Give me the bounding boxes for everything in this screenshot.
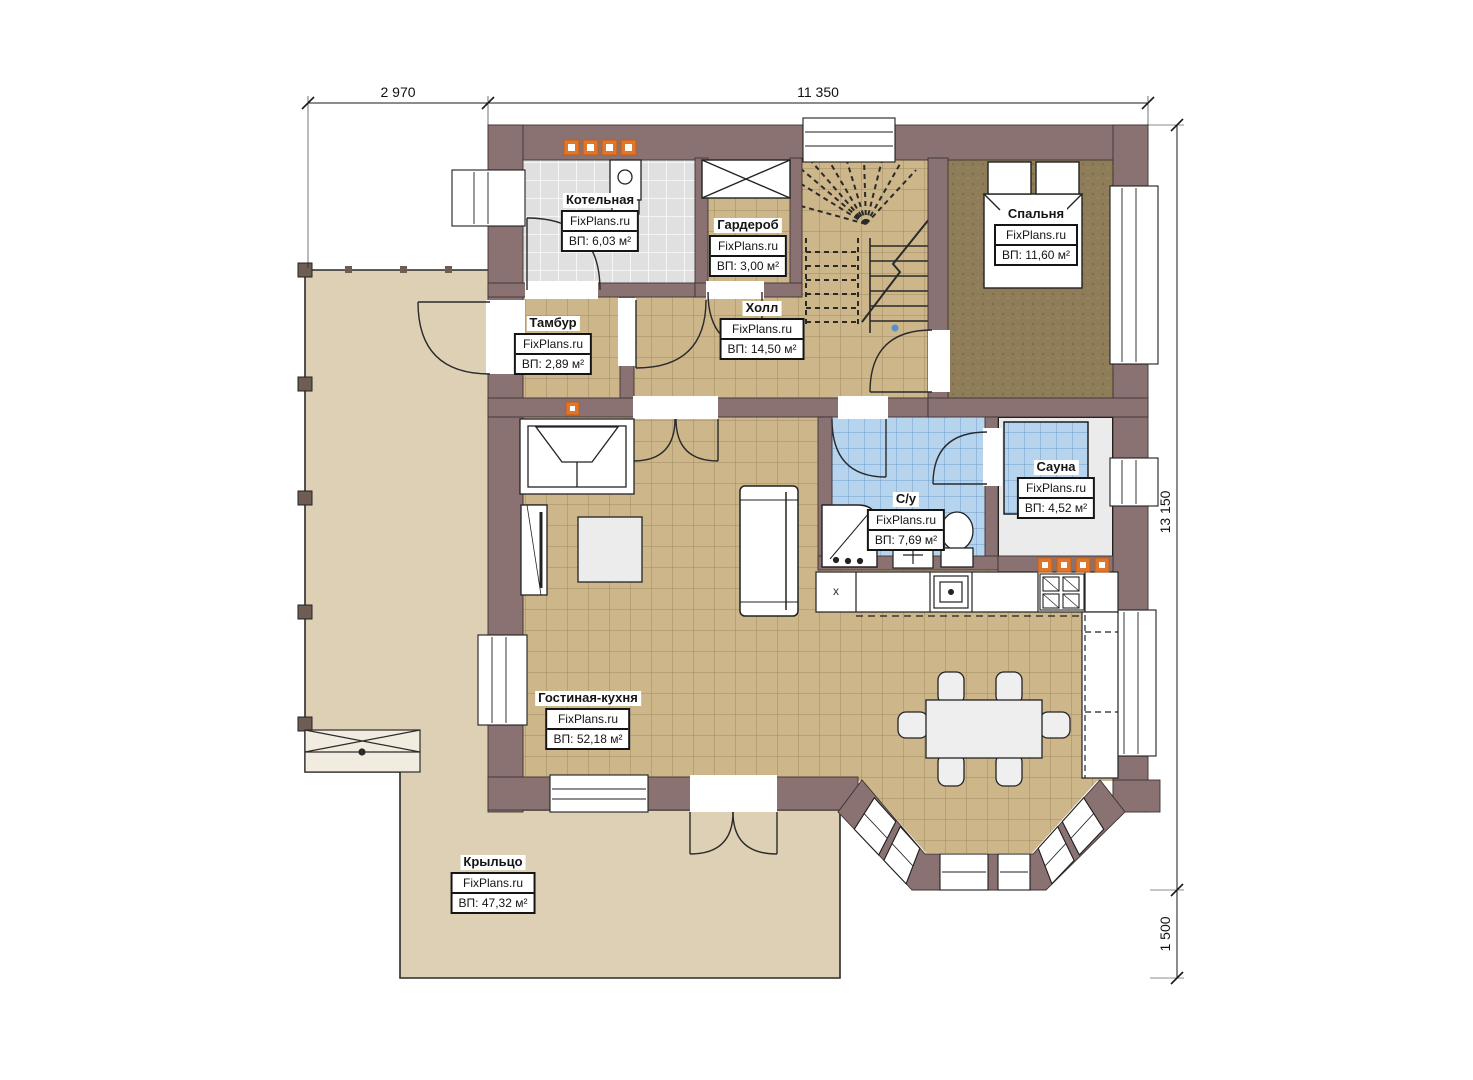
brand-text: FixPlans.ru [453, 874, 534, 894]
room-label-boiler: Котельная FixPlans.ru ВП: 6,03 м² [561, 193, 639, 252]
room-info-box: FixPlans.ru ВП: 3,00 м² [709, 235, 787, 277]
brand-text: FixPlans.ru [563, 212, 637, 232]
brand-text: FixPlans.ru [869, 511, 943, 531]
room-name: Спальня [1005, 207, 1067, 222]
sofa [740, 486, 798, 616]
brand-text: FixPlans.ru [1019, 479, 1093, 499]
room-info-box: FixPlans.ru ВП: 11,60 м² [994, 224, 1078, 266]
room-info-box: FixPlans.ru ВП: 4,52 м² [1017, 477, 1095, 519]
room-label-sauna: Сауна FixPlans.ru ВП: 4,52 м² [1017, 460, 1095, 519]
wall-bedroom-bottom [928, 398, 1148, 417]
tv-cabinet [521, 505, 547, 595]
room-label-bedroom: Спальня FixPlans.ru ВП: 11,60 м² [994, 207, 1078, 266]
room-info-box: FixPlans.ru ВП: 14,50 м² [720, 318, 805, 360]
room-info-box: FixPlans.ru ВП: 2,89 м² [514, 333, 592, 375]
brand-text: FixPlans.ru [722, 320, 803, 340]
wardrobe-cabinet [702, 160, 790, 198]
room-name: Холл [743, 301, 782, 316]
dim-top-left: 2 970 [380, 84, 415, 100]
kitchen-sink [934, 576, 968, 608]
wall-wardrobe-stairs [790, 158, 802, 297]
room-area: ВП: 47,32 м² [453, 894, 534, 912]
porch-steps [305, 730, 420, 772]
kitchen-cabinet-mark: x [816, 584, 856, 598]
brand-text: FixPlans.ru [516, 335, 590, 355]
room-area: ВП: 6,03 м² [563, 232, 637, 250]
room-label-living-kitchen: Гостиная-кухня FixPlans.ru ВП: 52,18 м² [535, 691, 641, 750]
room-label-bathroom: С/у FixPlans.ru ВП: 7,69 м² [867, 492, 945, 551]
room-label-wardrobe: Гардероб FixPlans.ru ВП: 3,00 м² [709, 218, 787, 277]
room-info-box: FixPlans.ru ВП: 47,32 м² [451, 872, 536, 914]
room-info-box: FixPlans.ru ВП: 7,69 м² [867, 509, 945, 551]
floor-plan-drawing [0, 0, 1473, 1080]
room-name: Гардероб [714, 218, 781, 233]
room-area: ВП: 2,89 м² [516, 355, 590, 373]
dim-right-lower: 1 500 [1157, 916, 1173, 951]
room-area: ВП: 4,52 м² [1019, 499, 1093, 517]
brand-text: FixPlans.ru [711, 237, 785, 257]
toilet [941, 512, 973, 567]
window-bottom [550, 775, 648, 812]
room-name: Котельная [563, 193, 637, 208]
fireplace [520, 419, 634, 494]
stairs-marker [892, 325, 899, 332]
brand-text: FixPlans.ru [996, 226, 1076, 246]
wall-bottom [488, 777, 858, 810]
window-bedroom [1110, 186, 1158, 364]
coffee-table [578, 517, 642, 582]
room-name: Сауна [1033, 460, 1078, 475]
room-name: Тамбур [526, 316, 579, 331]
room-area: ВП: 11,60 м² [996, 246, 1076, 264]
room-area: ВП: 3,00 м² [711, 257, 785, 275]
dim-right-height: 13 150 [1157, 491, 1173, 534]
room-info-box: FixPlans.ru ВП: 6,03 м² [561, 210, 639, 252]
window-left-upper [452, 170, 525, 226]
floor-plan-page: 2 970 11 350 13 150 1 500 Котельная FixP… [0, 0, 1473, 1080]
room-label-hall: Холл FixPlans.ru ВП: 14,50 м² [720, 301, 805, 360]
room-name: Гостиная-кухня [535, 691, 641, 706]
room-area: ВП: 7,69 м² [869, 531, 943, 549]
stove [1040, 574, 1084, 610]
room-area: ВП: 52,18 м² [548, 730, 629, 748]
brand-text: FixPlans.ru [548, 710, 629, 730]
window-sauna [1110, 458, 1158, 506]
radiator-hall [566, 402, 579, 415]
dim-top-right: 11 350 [797, 84, 839, 100]
room-name: Крыльцо [460, 855, 525, 870]
window-top [803, 118, 895, 162]
room-area: ВП: 14,50 м² [722, 340, 803, 358]
room-label-tambur: Тамбур FixPlans.ru ВП: 2,89 м² [514, 316, 592, 375]
window-left-lower [478, 635, 527, 725]
room-info-box: FixPlans.ru ВП: 52,18 м² [546, 708, 631, 750]
room-label-porch: Крыльцо FixPlans.ru ВП: 47,32 м² [451, 855, 536, 914]
room-name: С/у [893, 492, 919, 507]
